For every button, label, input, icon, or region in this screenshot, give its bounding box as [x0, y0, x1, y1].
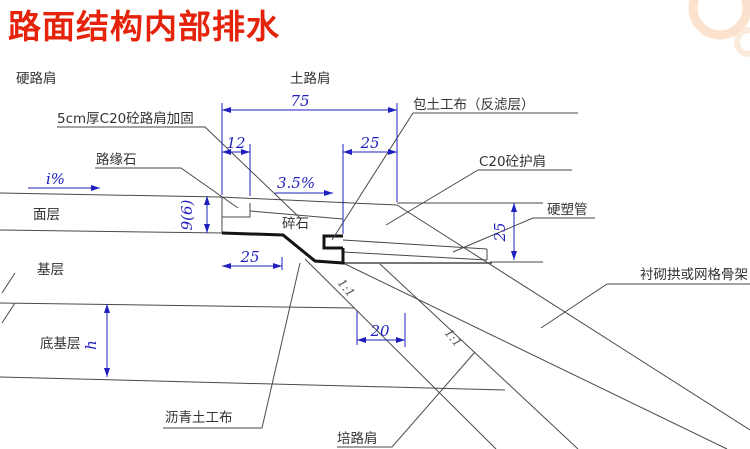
- leader-geotextile-wrap: [332, 113, 578, 240]
- label-asphalt-geotextile: 沥青土工布: [165, 410, 233, 426]
- dim-12: 12: [226, 134, 245, 152]
- label-base-course: 基层: [37, 261, 64, 278]
- slope-ratio-inner: 1:1: [335, 276, 358, 300]
- watermark-arc: [693, 0, 750, 54]
- label-surface-course: 面层: [33, 207, 60, 223]
- dim-20: 20: [369, 322, 390, 340]
- leader-curb: [95, 168, 238, 208]
- label-lining-arch: 衬砌拱或网格骨架: [640, 267, 748, 283]
- dim-h: h: [82, 340, 100, 350]
- label-shoulder-reinforcement: 5cm厚C20砼路肩加固: [57, 111, 194, 127]
- slide-page: 路面结构内部排水: [0, 0, 750, 449]
- dim-25-right: 25: [491, 222, 509, 242]
- drainage-cross-section-drawing: 75 12 25 25 25 20 9(6) h i% 3.5% 1:1 1:1…: [0, 0, 750, 449]
- label-c20-protect-shoulder: C20砼护肩: [479, 154, 546, 170]
- slope-3-5-percent: 3.5%: [277, 174, 315, 192]
- label-embankment-shoulder: 培路肩: [337, 431, 378, 447]
- leader-lining-arch: [541, 284, 750, 328]
- dim-9-6: 9(6): [178, 199, 196, 230]
- slope-ratio-outer: 1:1: [442, 326, 465, 350]
- leader-rigid-plastic-pipe: [453, 218, 595, 252]
- label-soil-shoulder: 土路肩: [290, 71, 331, 87]
- label-geotextile-wrap: 包土工布（反滤层）: [413, 97, 535, 113]
- dimension-lines: [28, 103, 514, 377]
- dim-25-top: 25: [359, 134, 379, 152]
- label-curb: 路缘石: [96, 152, 137, 168]
- label-rigid-plastic-pipe: 硬塑管: [547, 202, 588, 218]
- dim-25-left: 25: [239, 248, 259, 266]
- leader-c20-protect-shoulder: [386, 170, 572, 225]
- slope-i-percent: i%: [46, 170, 65, 188]
- pavement-layer-lines: [0, 193, 505, 390]
- leader-asphalt-geotextile: [163, 263, 300, 428]
- label-subbase-course: 底基层: [40, 335, 81, 352]
- label-hard-shoulder: 硬路肩: [16, 71, 57, 87]
- dim-75: 75: [290, 92, 309, 110]
- label-gravel: 碎石: [282, 216, 309, 232]
